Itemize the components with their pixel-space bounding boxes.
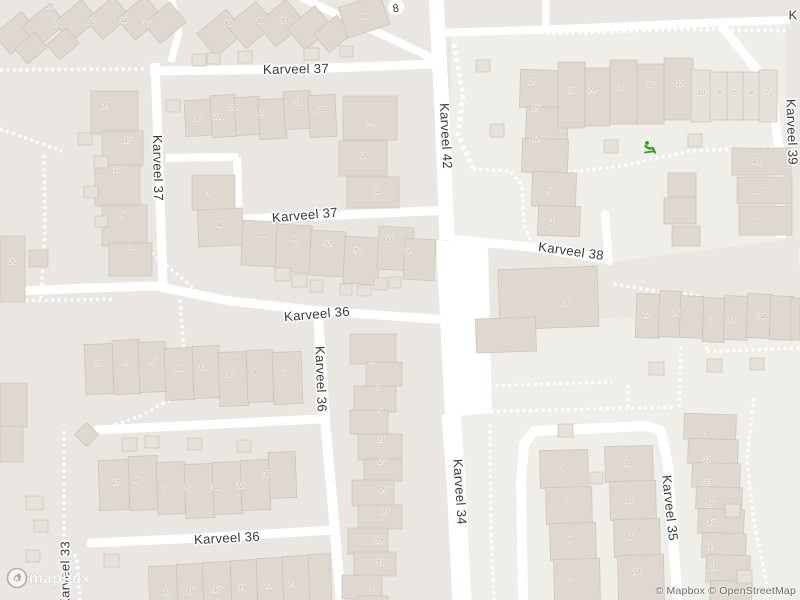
house-number: 76 <box>366 123 375 132</box>
building <box>725 504 740 517</box>
building <box>791 298 800 340</box>
house-number: 24 <box>587 85 596 94</box>
house-number: 36 <box>184 483 193 492</box>
building <box>389 277 401 288</box>
building <box>737 570 752 583</box>
house-number: 20 <box>193 114 202 123</box>
house-number: 32 <box>293 98 301 107</box>
house-number: 26 <box>671 308 681 317</box>
house-number: 9 <box>704 428 708 437</box>
house-number: 74 <box>359 12 367 21</box>
house-number: 33 <box>369 586 377 595</box>
house-number: 20 <box>616 83 625 92</box>
house-number: 16 <box>647 80 656 89</box>
building <box>34 520 48 532</box>
building <box>238 51 252 63</box>
building <box>350 410 388 434</box>
building <box>258 98 287 139</box>
building <box>374 278 387 290</box>
building <box>590 472 603 484</box>
house-number: 32 <box>236 481 244 490</box>
building <box>490 124 504 137</box>
building <box>26 496 43 510</box>
house-number: 13 <box>704 478 712 487</box>
house-number: 1 <box>370 356 374 365</box>
house-number: 20 <box>562 299 571 308</box>
building <box>188 438 202 450</box>
house-number: 20 <box>631 567 640 576</box>
building <box>240 460 271 511</box>
house-number: 13 <box>163 588 171 597</box>
building <box>26 550 40 562</box>
building <box>237 440 251 452</box>
mapbox-logo-icon <box>8 569 27 588</box>
house-number: 60 <box>384 234 392 243</box>
house-number: 15 <box>124 136 133 145</box>
building <box>707 359 722 372</box>
playground-icon-part <box>645 152 653 153</box>
building <box>241 220 278 267</box>
house-number: 20 <box>94 359 103 368</box>
house-number: 4 <box>749 88 753 97</box>
building <box>310 280 323 292</box>
house-number: 21 <box>376 435 385 444</box>
building <box>272 352 303 405</box>
building <box>275 268 290 281</box>
house-number: 28 <box>52 19 62 28</box>
building <box>94 156 108 168</box>
building <box>207 53 220 64</box>
building <box>750 358 764 370</box>
building <box>684 413 737 441</box>
house-number: 14 <box>624 459 632 468</box>
house-number: 68 <box>359 151 368 160</box>
house-number: 40 <box>217 220 225 229</box>
building <box>192 54 206 66</box>
building <box>668 173 696 197</box>
house-number: 52 <box>324 239 332 248</box>
house-number: 25 <box>379 485 389 494</box>
road[interactable] <box>166 157 238 158</box>
building <box>649 362 664 375</box>
house-number: 16 <box>148 356 157 365</box>
building <box>692 462 741 489</box>
building <box>679 296 704 339</box>
house-number: 12 <box>676 79 684 88</box>
house-number: 20 <box>8 257 17 266</box>
house-number: 28 <box>568 86 578 95</box>
house-number: 64 <box>373 187 381 196</box>
building <box>664 58 693 120</box>
building <box>340 284 352 295</box>
house-number: 11 <box>532 134 540 143</box>
building <box>128 456 159 511</box>
house-number: 42 <box>111 478 119 487</box>
building <box>192 346 221 399</box>
house-number: 30 <box>87 17 95 26</box>
building <box>521 138 568 174</box>
building <box>476 60 490 72</box>
building <box>769 296 794 341</box>
house-number: 10 <box>226 370 234 379</box>
building <box>145 436 159 448</box>
map-canvas[interactable]: 2628303436848890741915115120202224283234… <box>0 0 800 600</box>
playground-icon-part <box>645 141 649 145</box>
house-number: 23 <box>287 579 296 588</box>
building <box>308 94 337 137</box>
house-number: 12 <box>198 363 206 372</box>
building <box>604 140 618 153</box>
building <box>84 186 98 198</box>
building <box>282 556 311 600</box>
building <box>234 96 261 135</box>
house-number: 34 <box>119 16 127 25</box>
house-number: 84 <box>224 19 232 28</box>
building <box>138 342 167 393</box>
house-number: 28 <box>258 108 268 117</box>
street-label: Karveel 36 <box>312 346 329 413</box>
house-number: 18 <box>629 532 638 541</box>
building <box>156 462 187 515</box>
house-number: 30 <box>709 316 717 325</box>
building <box>672 226 700 246</box>
house-number: 23 <box>378 457 387 466</box>
house-number: 17 <box>213 585 222 594</box>
house-number: 10 <box>697 88 705 97</box>
building <box>358 596 388 600</box>
building <box>0 383 27 427</box>
house-number: 16 <box>626 496 635 505</box>
building <box>268 452 297 499</box>
building <box>546 487 593 525</box>
house-number: 29 <box>374 536 383 545</box>
house-number: 11 <box>113 165 121 174</box>
building <box>357 285 371 296</box>
building <box>340 46 353 57</box>
building <box>309 230 346 277</box>
building <box>104 554 119 567</box>
building <box>29 250 48 267</box>
building <box>275 224 312 273</box>
building <box>610 60 637 124</box>
building <box>737 177 792 204</box>
building <box>343 96 397 140</box>
house-number: 27 <box>380 507 390 516</box>
house-number: 17 <box>707 518 716 527</box>
building <box>84 344 115 395</box>
building <box>739 206 792 235</box>
building <box>91 91 138 134</box>
house-number: 19 <box>238 583 246 592</box>
building <box>246 350 275 403</box>
house-number: 38 <box>163 484 172 493</box>
building <box>585 68 610 126</box>
house-number: 30 <box>263 469 271 478</box>
building <box>218 352 249 407</box>
building <box>343 236 380 285</box>
building <box>0 236 25 302</box>
building <box>531 171 576 208</box>
house-number: 36 <box>206 189 215 198</box>
house-number: 44 <box>754 187 762 196</box>
building <box>112 340 141 395</box>
building <box>292 274 307 287</box>
building <box>759 70 777 122</box>
house-number: 32 <box>727 315 735 324</box>
building <box>637 64 664 124</box>
house-number: 40 <box>134 476 142 485</box>
building <box>308 554 332 600</box>
building <box>558 62 585 128</box>
building <box>164 348 195 401</box>
house-number: 34 <box>211 483 219 492</box>
house-number: 48 <box>293 234 302 243</box>
building <box>475 317 536 353</box>
house-number: 34 <box>757 312 765 321</box>
building <box>304 48 319 60</box>
street-label: Karveel 37 <box>150 135 166 201</box>
house-number: 3 <box>376 383 380 392</box>
road[interactable] <box>605 214 609 261</box>
building <box>166 100 180 112</box>
house-number: 34 <box>317 105 325 114</box>
house-number: 22 <box>641 310 650 319</box>
house-number: 19 <box>529 77 537 86</box>
house-number: 15 <box>706 500 715 509</box>
building <box>0 426 23 462</box>
house-number: 26 <box>45 1 55 10</box>
building <box>78 133 92 145</box>
house-number: 19 <box>708 542 716 551</box>
house-number: 36 <box>142 19 151 28</box>
building <box>554 559 601 600</box>
building <box>202 562 233 600</box>
street-label: K <box>788 7 797 22</box>
building <box>732 148 791 175</box>
building <box>664 198 696 224</box>
house-number: 88 <box>257 16 266 25</box>
mapbox-logo[interactable]: mapbox <box>6 566 90 595</box>
house-number: 15 <box>532 104 541 113</box>
house-number: 21 <box>708 563 717 572</box>
building <box>366 362 402 386</box>
pedestrian-area <box>451 21 786 262</box>
building <box>230 560 259 600</box>
building <box>688 438 739 465</box>
house-number: 44 <box>259 230 267 239</box>
house-number: 90 <box>280 16 288 25</box>
house-number: 15 <box>186 587 195 596</box>
house-number: 21 <box>263 581 272 590</box>
house-number: 2 <box>764 86 769 95</box>
map-screenshot: 2628303436848890741915115120202224283234… <box>0 0 800 600</box>
house-number: 14 <box>175 364 183 373</box>
building <box>550 523 597 561</box>
house-number: 31 <box>376 558 384 567</box>
street-label: Karveel 39 <box>783 99 800 166</box>
house-number: 24 <box>228 103 237 112</box>
building <box>558 424 573 437</box>
house-number: 22 <box>212 112 221 121</box>
house-number: 11 <box>703 455 711 464</box>
house-number: 40 <box>752 157 760 166</box>
house-number: 4 <box>567 535 571 544</box>
house-number: 48 <box>756 217 765 226</box>
map-attribution[interactable]: © Mapbox © OpenStreetMap <box>655 585 796 597</box>
building <box>122 438 137 451</box>
street-label: Karveel 37 <box>263 61 329 77</box>
house-number: 19 <box>102 101 110 110</box>
mapbox-logo-text: mapbox <box>29 571 90 588</box>
house-number: 62 <box>404 245 412 254</box>
house-number: 1 <box>550 217 554 226</box>
building <box>95 216 108 227</box>
building <box>537 205 580 236</box>
house-number: 1 <box>129 242 133 251</box>
house-number: 2 <box>568 572 573 581</box>
house-number: 56 <box>354 246 363 255</box>
house-number: 18 <box>124 357 133 366</box>
building <box>688 134 702 147</box>
